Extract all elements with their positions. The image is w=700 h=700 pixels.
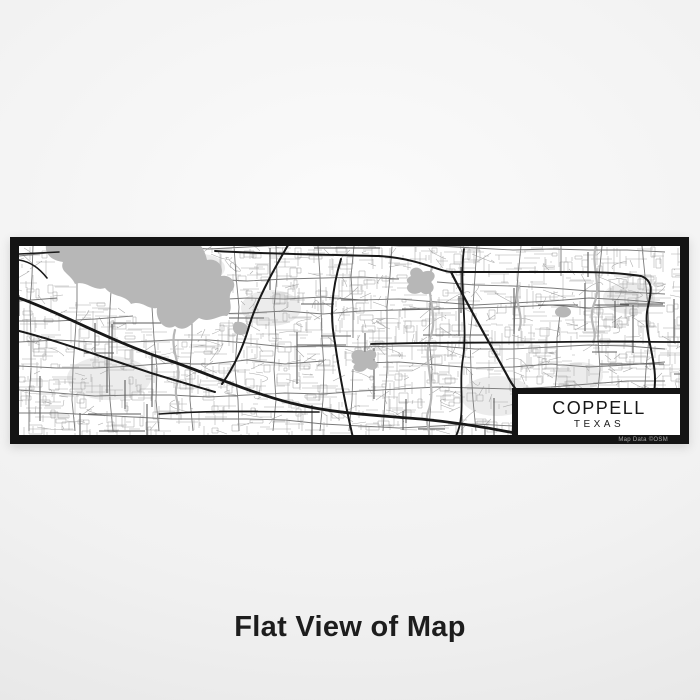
center-lake	[351, 350, 377, 372]
map-title-card: COPPELL TEXAS	[512, 388, 686, 441]
map-city-label: COPPELL	[552, 399, 646, 418]
product-photo: COPPELL TEXAS Map Data ©OSM Flat View of…	[0, 0, 700, 700]
map-frame: COPPELL TEXAS Map Data ©OSM	[10, 237, 689, 444]
map-attribution: Map Data ©OSM	[618, 437, 668, 443]
map-state-label: TEXAS	[574, 419, 624, 430]
caption: Flat View of Map	[0, 611, 700, 644]
pond	[555, 307, 571, 318]
